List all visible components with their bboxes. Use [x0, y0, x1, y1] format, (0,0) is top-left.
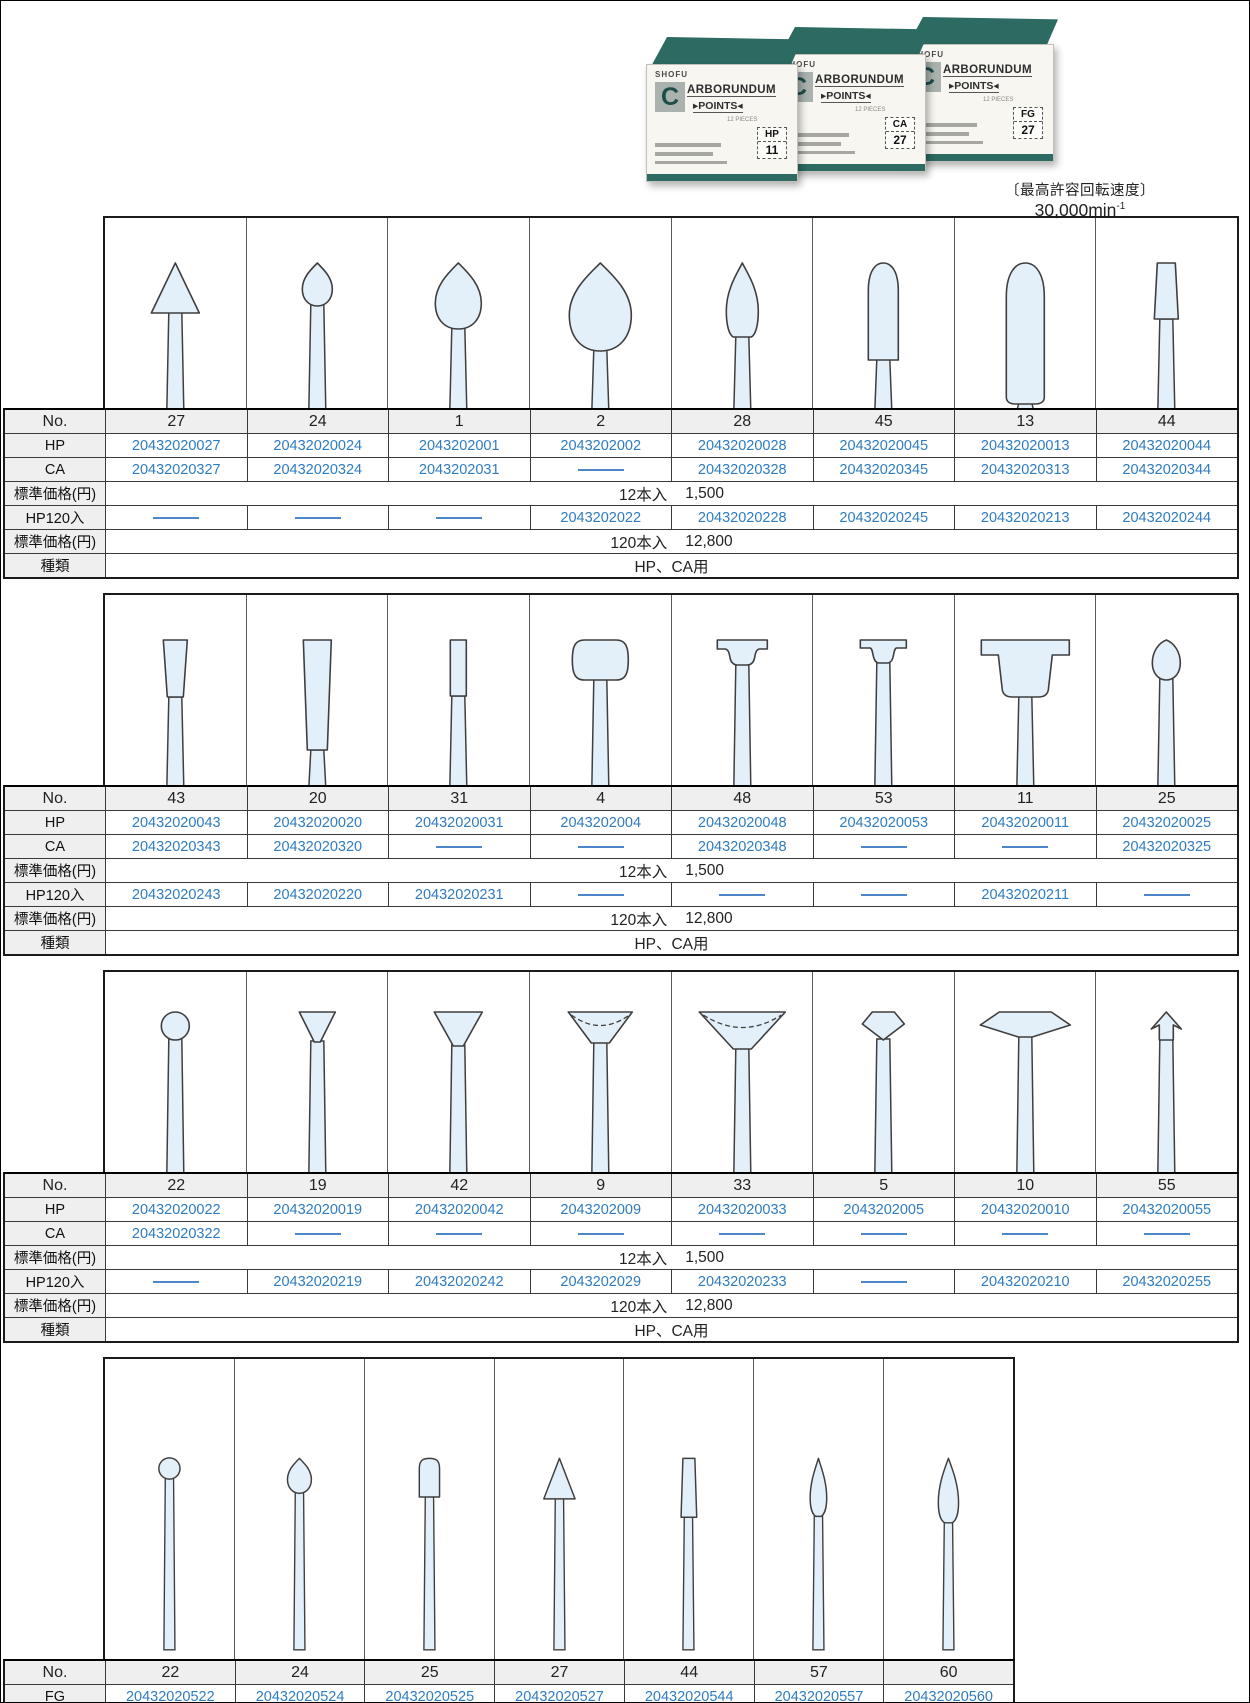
hp-code-link[interactable]: 20432020025	[1122, 815, 1211, 831]
product-no-cell: 25	[364, 1661, 494, 1684]
flame-bur-icon	[672, 218, 813, 408]
product-name-line1: ARBORUNDUM	[943, 64, 1032, 77]
not-available-dash	[153, 517, 199, 519]
ca-code-cell: 20432020348	[671, 835, 813, 858]
hp-code-cell: 20432020022	[105, 1198, 247, 1221]
roundcyl4-bur-icon	[365, 1359, 494, 1659]
tapercyl-s-bur-icon	[105, 595, 246, 785]
hp-code-link[interactable]: 20432020048	[698, 815, 787, 831]
not-available-dash	[719, 894, 765, 896]
price-amount: 12,800	[685, 1297, 732, 1315]
price-quantity: 120本入	[610, 1295, 667, 1317]
price-cell: 12本入1,500	[105, 482, 1237, 505]
product-no-cell: 28	[671, 410, 813, 433]
row-label-hp: HP	[5, 434, 105, 457]
price-amount: 12,800	[685, 910, 732, 928]
hp-code-link[interactable]: 20432020042	[415, 1202, 504, 1218]
hp-code-link[interactable]: 20432020028	[698, 438, 787, 454]
hp120-code-cell: 2043202022	[530, 506, 672, 529]
fg-code-link[interactable]: 20432020557	[775, 1689, 864, 1703]
ca-code-link[interactable]: 20432020348	[698, 839, 787, 855]
bur-shape-cell	[671, 972, 813, 1172]
ca-row: CA20432020322	[5, 1221, 1237, 1245]
bur-shape-cell	[954, 972, 1096, 1172]
ca-code-link[interactable]: 20432020320	[273, 839, 362, 855]
hp120-code-link[interactable]: 20432020213	[981, 510, 1070, 526]
not-available-dash	[578, 846, 624, 848]
hp120-code-link[interactable]: 20432020210	[981, 1274, 1070, 1290]
product-name-line1: ARBORUNDUM	[815, 74, 904, 87]
row-label-kind: 種類	[5, 554, 105, 577]
bur-shape-cell	[105, 595, 246, 785]
type-number: 27	[1014, 122, 1042, 138]
hp-code-link[interactable]: 20432020044	[1122, 438, 1211, 454]
ca-code-link[interactable]: 2043202031	[419, 462, 500, 478]
hp120-code-link[interactable]: 20432020255	[1122, 1274, 1211, 1290]
hp-code-link[interactable]: 20432020055	[1122, 1202, 1211, 1218]
product-no-cell: 43	[105, 787, 247, 810]
row-label-hp: HP	[5, 1198, 105, 1221]
row-label-hp120: HP120入	[5, 506, 105, 529]
hp-code-link[interactable]: 20432020019	[273, 1202, 362, 1218]
bur-shape-cell	[812, 972, 954, 1172]
product-no-cell: 45	[813, 410, 955, 433]
spec-table-1: No.27241228451344HP204320200272043202002…	[3, 216, 1239, 579]
tflange-l-bur-icon	[955, 595, 1096, 785]
not-available-dash	[295, 517, 341, 519]
ca-code-link[interactable]: 20432020328	[698, 462, 787, 478]
product-no-row: No.22242527445760	[5, 1661, 1013, 1684]
kind-row: 種類HP、CA用	[5, 1317, 1237, 1341]
box-lid	[908, 17, 1058, 47]
hp-code-link[interactable]: 20432020020	[273, 815, 362, 831]
points-text: POINTS	[826, 90, 865, 102]
not-available-dash	[719, 1233, 765, 1235]
hp-code-link[interactable]: 20432020045	[839, 438, 928, 454]
hp120-code-cell: 2043202029	[530, 1270, 672, 1293]
hp-code-link[interactable]: 20432020024	[273, 438, 362, 454]
fg-row: FG20432020522204320205242043202052520432…	[5, 1684, 1013, 1703]
row-label-no: No.	[5, 1174, 105, 1197]
flame4-s-bur-icon	[754, 1359, 883, 1659]
pieces-note: 12 PIECES	[727, 117, 757, 123]
product-no-cell: 20	[247, 787, 389, 810]
bur-shape-cell	[246, 595, 388, 785]
bur-shape-strip	[103, 593, 1239, 785]
type-code: CA	[886, 118, 914, 132]
hp-code-link[interactable]: 20432020022	[132, 1202, 221, 1218]
hp-code-cell: 2043202009	[530, 1198, 672, 1221]
not-available-dash	[436, 1233, 482, 1235]
hp-code-link[interactable]: 20432020011	[981, 815, 1069, 831]
fg-code-link[interactable]: 20432020524	[256, 1689, 345, 1703]
row-label-hp120: HP120入	[5, 883, 105, 906]
hp120-code-cell: 20432020244	[1096, 506, 1238, 529]
product-no-cell: 1	[388, 410, 530, 433]
product-no-cell: 11	[954, 787, 1096, 810]
ca-code-link[interactable]: 20432020313	[981, 462, 1070, 478]
row-label-price: 標準価格(円)	[5, 859, 105, 882]
ca-code-cell	[247, 1222, 389, 1245]
hp-code-link[interactable]: 20432020033	[698, 1202, 787, 1218]
hp120-code-cell	[1096, 883, 1238, 906]
fg-code-link[interactable]: 20432020522	[126, 1689, 215, 1703]
row-label-kind: 種類	[5, 1318, 105, 1341]
cone4-bur-icon	[495, 1359, 624, 1659]
torpedo-bur-icon	[955, 218, 1096, 408]
not-available-dash	[861, 894, 907, 896]
lens-w-bur-icon	[955, 972, 1096, 1172]
fg-code-link[interactable]: 20432020560	[904, 1689, 993, 1703]
points-text: POINTS	[698, 100, 737, 112]
hp-code-cell: 20432020031	[388, 811, 530, 834]
hp120-code-cell: 20432020245	[813, 506, 955, 529]
price-quantity: 12本入	[619, 483, 667, 505]
price-cell: 120本入12,800	[105, 530, 1237, 553]
price-quantity: 12本入	[619, 860, 667, 882]
spec-rows: No.432031448531125HP20432020043204320200…	[3, 785, 1239, 956]
ca-code-cell	[388, 835, 530, 858]
not-available-dash	[578, 894, 624, 896]
hp120-code-link[interactable]: 2043202022	[560, 510, 641, 526]
hp-code-cell: 2043202001	[388, 434, 530, 457]
fg-code-cell: 20432020525	[364, 1685, 494, 1703]
bur-shape-cell	[671, 595, 813, 785]
product-no-cell: 48	[671, 787, 813, 810]
row-label-ca: CA	[5, 835, 105, 858]
fine-print-line	[655, 161, 727, 164]
price-row: 標準価格(円)12本入1,500	[5, 1245, 1237, 1269]
type-number: 27	[886, 132, 914, 148]
product-no-cell: 10	[954, 1174, 1096, 1197]
bur-shape-cell	[529, 595, 671, 785]
not-available-dash	[578, 1233, 624, 1235]
hp-code-link[interactable]: 2043202005	[843, 1202, 924, 1218]
fg-code-cell: 20432020557	[754, 1685, 884, 1703]
hp120-code-link[interactable]: 20432020233	[698, 1274, 787, 1290]
hp-code-cell: 20432020043	[105, 811, 247, 834]
fg-code-cell: 20432020544	[624, 1685, 754, 1703]
bur-shape-cell	[1095, 972, 1237, 1172]
max-speed-label: 〔最高許容回転速度〕	[1001, 179, 1159, 200]
hp120-code-cell	[813, 883, 955, 906]
ball-bur-icon	[105, 972, 246, 1172]
price-amount: 12,800	[685, 533, 732, 551]
ca-row: CA20432020343204320203202043202034820432…	[5, 834, 1237, 858]
hp120-code-cell: 20432020210	[954, 1270, 1096, 1293]
drop-m-bur-icon	[388, 218, 529, 408]
row-label-ca: CA	[5, 458, 105, 481]
product-name-line2: ▸POINTS◂	[821, 90, 871, 103]
hp-code-link[interactable]: 20432020013	[981, 438, 1070, 454]
hp-code-link[interactable]: 2043202004	[560, 815, 641, 831]
bur-shape-cell	[494, 1359, 624, 1659]
spec-rows: No.27241228451344HP204320200272043202002…	[3, 408, 1239, 579]
spec-rows: No.22194293351055HP204320200222043202001…	[3, 1172, 1239, 1343]
row-label-no: No.	[5, 1661, 105, 1684]
hp120-code-link[interactable]: 20432020242	[415, 1274, 504, 1290]
hp-code-cell: 20432020045	[813, 434, 955, 457]
bur-shape-cell	[623, 1359, 753, 1659]
price-cell: 12本入1,500	[105, 859, 1237, 882]
price-row: 標準価格(円)120本入12,800	[5, 1293, 1237, 1317]
ca-code-cell: 20432020322	[105, 1222, 247, 1245]
fg-code-link[interactable]: 20432020525	[385, 1689, 474, 1703]
product-no-cell: 24	[247, 410, 389, 433]
hp120-code-link[interactable]: 20432020219	[273, 1274, 362, 1290]
spec-rows: No.22242527445760FG204320205222043202052…	[3, 1659, 1015, 1703]
bur-shape-cell	[105, 972, 246, 1172]
product-no-cell: 27	[105, 410, 247, 433]
arrow-left-icon: ◂	[993, 80, 998, 92]
box-front: SHOFU C ARBORUNDUM ▸POINTS◂ 12 PIECES HP…	[646, 64, 798, 182]
cone-bur-icon	[105, 218, 246, 408]
not-available-dash	[1002, 1233, 1048, 1235]
hp120-code-cell: 20432020211	[954, 883, 1096, 906]
ca-code-cell	[388, 1222, 530, 1245]
price-amount: 1,500	[685, 1249, 724, 1267]
hp120-code-link[interactable]: 20432020243	[132, 887, 221, 903]
egg-s-bur-icon	[1096, 595, 1237, 785]
product-no-row: No.432031448531125	[5, 787, 1237, 810]
hp-code-link[interactable]: 20432020010	[981, 1202, 1070, 1218]
drop-l-bur-icon	[530, 218, 671, 408]
product-name-line2: ▸POINTS◂	[693, 100, 743, 113]
bullet-bur-icon	[813, 218, 954, 408]
ca-code-cell: 20432020327	[105, 458, 247, 481]
product-no-cell: 22	[105, 1174, 247, 1197]
product-no-cell: 31	[388, 787, 530, 810]
hp120-code-link[interactable]: 20432020231	[415, 887, 504, 903]
row-label-price: 標準価格(円)	[5, 482, 105, 505]
product-no-cell: 5	[813, 1174, 955, 1197]
hp120-code-link[interactable]: 20432020244	[1122, 510, 1211, 526]
row-label-price: 標準価格(円)	[5, 907, 105, 930]
price-row: 標準価格(円)120本入12,800	[5, 529, 1237, 553]
hp120-code-cell	[105, 1270, 247, 1293]
row-label-kind: 種類	[5, 931, 105, 954]
hp-code-cell: 20432020033	[671, 1198, 813, 1221]
bur-shape-cell	[364, 1359, 494, 1659]
bur-shape-cell	[529, 218, 671, 408]
bur-shape-cell	[1095, 218, 1237, 408]
page-header: SHOFU C ARBORUNDUM ▸POINTS◂ 12 PIECES HP…	[1, 1, 1249, 216]
row-label-hp: HP	[5, 811, 105, 834]
bur-shape-strip	[103, 216, 1239, 408]
product-no-cell: 25	[1096, 787, 1238, 810]
hp-code-link[interactable]: 20432020053	[839, 815, 928, 831]
ca-code-cell	[530, 835, 672, 858]
ball4-bur-icon	[105, 1359, 234, 1659]
ca-code-cell: 20432020320	[247, 835, 389, 858]
hp-row: HP20432020027204320200242043202001204320…	[5, 433, 1237, 457]
hp120-row: HP120入2043202021920432020242204320202920…	[5, 1269, 1237, 1293]
product-no-cell: 44	[624, 1661, 754, 1684]
hp120-code-link[interactable]: 20432020245	[839, 510, 928, 526]
row-label-ca: CA	[5, 1222, 105, 1245]
not-available-dash	[436, 517, 482, 519]
arrow-left-icon: ◂	[737, 100, 742, 112]
pieces-note: 12 PIECES	[855, 107, 885, 113]
drop-s-bur-icon	[247, 218, 388, 408]
taper4-bur-icon	[624, 1359, 753, 1659]
row-label-fg: FG	[5, 1685, 105, 1703]
row-label-price: 標準価格(円)	[5, 1294, 105, 1317]
bur-shape-cell	[812, 218, 954, 408]
hp-code-cell: 20432020044	[1096, 434, 1238, 457]
bur-shape-cell	[246, 218, 388, 408]
ca-code-link[interactable]: 20432020322	[132, 1226, 221, 1242]
hp-code-link[interactable]: 20432020031	[415, 815, 504, 831]
max-speed-note: 〔最高許容回転速度〕 30,000min-1	[1001, 179, 1159, 221]
bur-shape-cell	[529, 972, 671, 1172]
ca-code-link[interactable]: 20432020325	[1122, 839, 1211, 855]
not-available-dash	[153, 1281, 199, 1283]
hp120-code-cell: 20432020231	[388, 883, 530, 906]
ca-code-link[interactable]: 20432020345	[839, 462, 928, 478]
hp120-code-link[interactable]: 20432020228	[698, 510, 787, 526]
fg-code-link[interactable]: 20432020527	[515, 1689, 604, 1703]
ca-code-cell	[954, 835, 1096, 858]
not-available-dash	[1002, 846, 1048, 848]
ca-code-cell: 20432020325	[1096, 835, 1238, 858]
hp-code-cell: 20432020011	[954, 811, 1096, 834]
not-available-dash	[1144, 1233, 1190, 1235]
hp-code-link[interactable]: 2043202009	[560, 1202, 641, 1218]
hp-code-cell: 2043202002	[530, 434, 672, 457]
ca-code-cell	[954, 1222, 1096, 1245]
type-number-label: HP 11	[757, 127, 787, 159]
row-label-price: 標準価格(円)	[5, 530, 105, 553]
box-lid	[780, 27, 930, 57]
hp-code-cell: 2043202004	[530, 811, 672, 834]
max-speed-number: 30,000min	[1035, 200, 1117, 220]
ca-code-cell: 20432020324	[247, 458, 389, 481]
fg-code-cell: 20432020527	[494, 1685, 624, 1703]
price-row: 標準価格(円)12本入1,500	[5, 858, 1237, 882]
hp120-code-cell	[530, 883, 672, 906]
hp-code-link[interactable]: 2043202001	[419, 438, 500, 454]
hp-row: HP20432020022204320200192043202004220432…	[5, 1197, 1237, 1221]
ca-code-cell	[813, 1222, 955, 1245]
bur-shape-cell	[234, 1359, 364, 1659]
product-no-cell: 53	[813, 787, 955, 810]
ca-code-link[interactable]: 20432020343	[132, 839, 221, 855]
hp-code-link[interactable]: 2043202002	[560, 438, 641, 454]
hp-code-link[interactable]: 20432020027	[132, 438, 221, 454]
hp120-row: HP120入2043202024320432020220204320202312…	[5, 882, 1237, 906]
product-no-cell: 27	[494, 1661, 624, 1684]
ca-code-link[interactable]: 20432020344	[1122, 462, 1211, 478]
product-no-cell: 60	[883, 1661, 1013, 1684]
ca-code-cell: 20432020343	[105, 835, 247, 858]
price-amount: 1,500	[685, 862, 724, 880]
type-code: HP	[758, 128, 786, 142]
ca-code-cell	[813, 835, 955, 858]
hp120-code-cell: 20432020219	[247, 1270, 389, 1293]
fg-code-cell: 20432020522	[105, 1685, 235, 1703]
product-no-cell: 42	[388, 1174, 530, 1197]
bur-shape-cell	[671, 218, 813, 408]
price-amount: 1,500	[685, 485, 724, 503]
type-number-label: CA 27	[885, 117, 915, 149]
ca-code-cell: 20432020328	[671, 458, 813, 481]
product-name-line2: ▸POINTS◂	[949, 80, 999, 93]
hp120-code-cell: 20432020228	[671, 506, 813, 529]
hp-code-cell: 20432020024	[247, 434, 389, 457]
hp120-code-cell: 20432020220	[247, 883, 389, 906]
hp-code-cell: 20432020010	[954, 1198, 1096, 1221]
ca-code-link[interactable]: 20432020324	[273, 462, 362, 478]
fg-code-cell: 20432020560	[883, 1685, 1013, 1703]
wheel-bur-icon	[530, 595, 671, 785]
not-available-dash	[436, 846, 482, 848]
hp120-code-link[interactable]: 2043202029	[560, 1274, 641, 1290]
product-no-cell: 13	[954, 410, 1096, 433]
pieces-note: 12 PIECES	[983, 97, 1013, 103]
type-number: 11	[758, 142, 786, 158]
tflange-s-bur-icon	[672, 595, 813, 785]
hp120-code-link[interactable]: 20432020211	[981, 887, 1069, 903]
hp-code-cell: 20432020025	[1096, 811, 1238, 834]
product-no-cell: 55	[1096, 1174, 1238, 1197]
tflange-m-bur-icon	[813, 595, 954, 785]
product-no-cell: 9	[530, 1174, 672, 1197]
hp-code-cell: 20432020053	[813, 811, 955, 834]
box-bottom-edge	[647, 174, 797, 181]
bur-shape-cell	[246, 972, 388, 1172]
invcone-m-bur-icon	[388, 972, 529, 1172]
ca-code-cell: 20432020313	[954, 458, 1096, 481]
bur-shape-strip	[103, 970, 1239, 1172]
hp120-row: HP120入2043202022204320202282043202024520…	[5, 505, 1237, 529]
product-no-cell: 22	[105, 1661, 235, 1684]
spec-table-4: No.22242527445760FG204320205222043202052…	[3, 1357, 1015, 1703]
product-no-cell: 57	[754, 1661, 884, 1684]
spec-table-3: No.22194293351055HP204320200222043202001…	[3, 970, 1239, 1343]
box-lid	[652, 37, 802, 67]
price-row: 標準価格(円)120本入12,800	[5, 906, 1237, 930]
hp120-code-cell: 20432020242	[388, 1270, 530, 1293]
hp120-code-cell: 20432020255	[1096, 1270, 1238, 1293]
hp-row: HP20432020043204320200202043202003120432…	[5, 810, 1237, 834]
product-no-row: No.22194293351055	[5, 1174, 1237, 1197]
hp120-code-link[interactable]: 20432020220	[273, 887, 362, 903]
row-label-hp120: HP120入	[5, 1270, 105, 1293]
type-number-label: FG 27	[1013, 107, 1043, 139]
price-quantity: 120本入	[610, 531, 667, 553]
product-no-cell: 19	[247, 1174, 389, 1197]
hp-code-link[interactable]: 20432020043	[132, 815, 221, 831]
hex-s-bur-icon	[813, 972, 954, 1172]
ca-code-link[interactable]: 20432020327	[132, 462, 221, 478]
bur-shape-cell	[105, 218, 246, 408]
ca-code-cell	[530, 458, 672, 481]
type-code: FG	[1014, 108, 1042, 122]
bur-shape-cell	[883, 1359, 1013, 1659]
cup-m-bur-icon	[530, 972, 671, 1172]
kind-row: 種類HP、CA用	[5, 930, 1237, 954]
hp-code-cell: 20432020019	[247, 1198, 389, 1221]
price-quantity: 120本入	[610, 908, 667, 930]
arrow-s-bur-icon	[1096, 972, 1237, 1172]
product-no-cell: 33	[671, 1174, 813, 1197]
not-available-dash	[861, 846, 907, 848]
bur-shape-cell	[105, 1359, 234, 1659]
fg-code-link[interactable]: 20432020544	[645, 1689, 734, 1703]
hp-code-cell: 20432020020	[247, 811, 389, 834]
bur-shape-cell	[812, 595, 954, 785]
